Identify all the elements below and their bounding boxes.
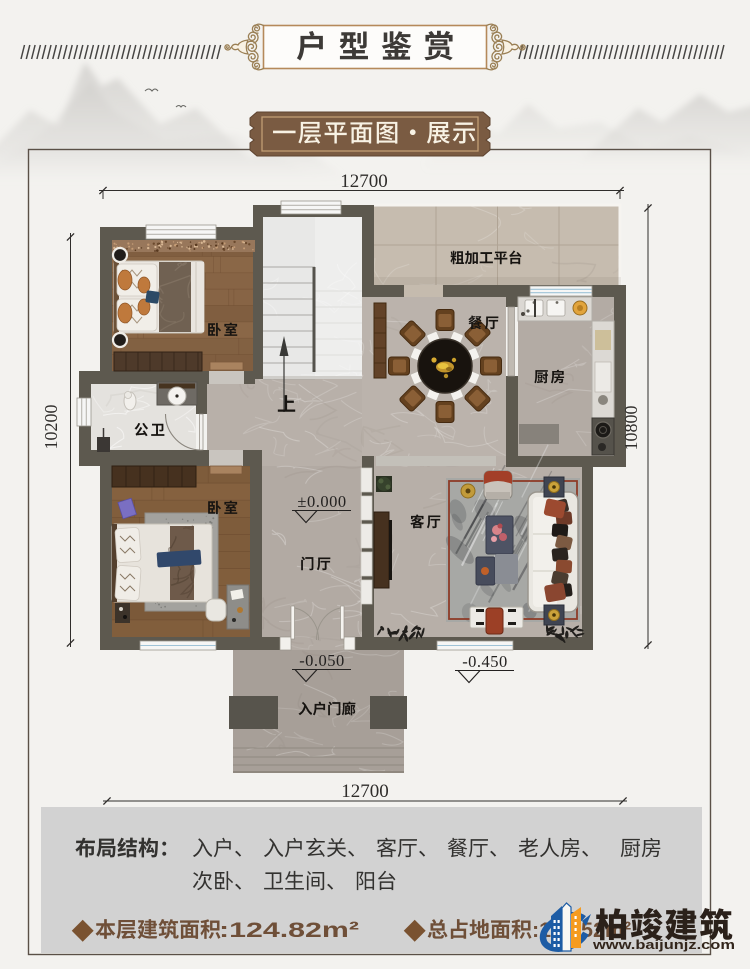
- svg-text::124.82m²: :124.82m²: [219, 918, 359, 942]
- svg-text:±0.000: ±0.000: [297, 492, 346, 511]
- svg-text:10200: 10200: [41, 405, 61, 450]
- svg-text:12700: 12700: [341, 781, 389, 802]
- svg-text:-0.450: -0.450: [462, 652, 508, 671]
- svg-text:10800: 10800: [621, 406, 641, 451]
- svg-text:www.baijunjz.com: www.baijunjz.com: [592, 937, 735, 952]
- svg-text:12700: 12700: [340, 171, 388, 192]
- svg-text:-0.050: -0.050: [299, 651, 345, 670]
